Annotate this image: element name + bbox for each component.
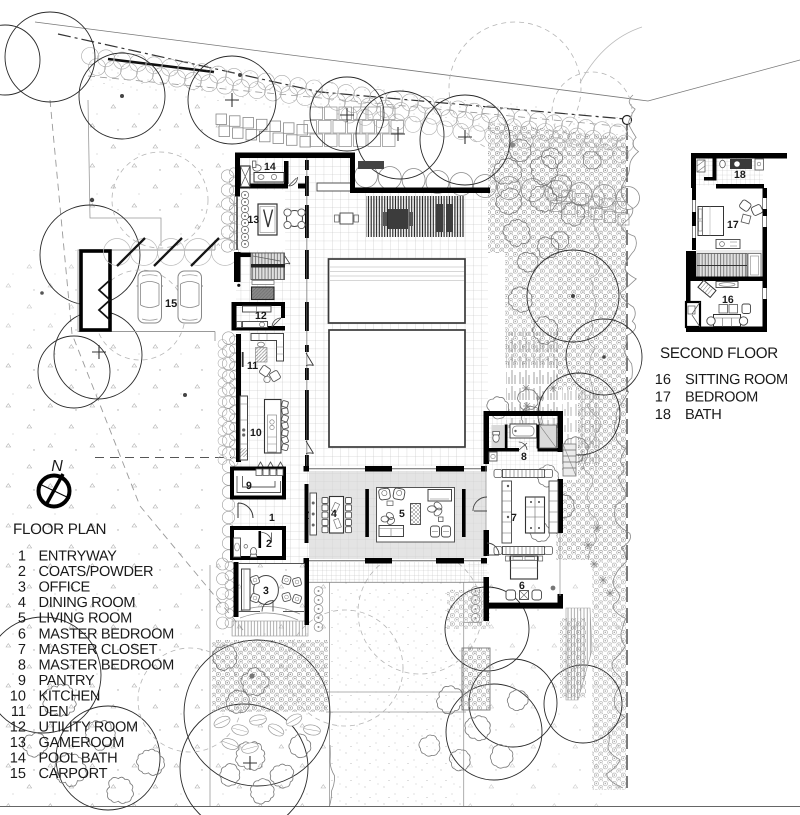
- svg-text:N: N: [51, 458, 63, 475]
- svg-text:5: 5: [399, 508, 405, 520]
- svg-text:14: 14: [10, 751, 26, 767]
- svg-text:13: 13: [10, 735, 26, 751]
- svg-text:5: 5: [18, 611, 26, 627]
- svg-text:COATS/POWDER: COATS/POWDER: [39, 564, 154, 580]
- svg-text:9: 9: [18, 673, 26, 689]
- svg-text:2: 2: [18, 564, 26, 580]
- svg-text:11: 11: [11, 704, 26, 720]
- svg-text:DEN: DEN: [39, 704, 69, 720]
- svg-text:8: 8: [521, 451, 527, 463]
- svg-text:6: 6: [18, 626, 26, 642]
- svg-text:15: 15: [165, 298, 177, 310]
- svg-text:1: 1: [269, 512, 275, 524]
- svg-text:ENTRYWAY: ENTRYWAY: [39, 549, 118, 565]
- svg-text:16: 16: [655, 372, 671, 388]
- svg-text:10: 10: [250, 427, 262, 439]
- svg-text:16: 16: [722, 294, 734, 306]
- svg-text:FLOOR PLAN: FLOOR PLAN: [13, 521, 106, 538]
- svg-text:18: 18: [734, 169, 746, 181]
- svg-text:17: 17: [655, 389, 671, 405]
- svg-text:POOL BATH: POOL BATH: [39, 751, 118, 767]
- svg-text:LIVING ROOM: LIVING ROOM: [39, 611, 132, 627]
- svg-text:BEDROOM: BEDROOM: [685, 389, 758, 405]
- svg-text:GAMEROOM: GAMEROOM: [39, 735, 125, 751]
- svg-text:14: 14: [264, 161, 276, 173]
- svg-text:MASTER BEDROOM: MASTER BEDROOM: [39, 626, 174, 642]
- svg-text:SITTING ROOM: SITTING ROOM: [685, 372, 788, 388]
- svg-text:11: 11: [247, 360, 258, 372]
- svg-text:15: 15: [10, 766, 26, 782]
- svg-text:3: 3: [18, 580, 26, 596]
- svg-text:10: 10: [10, 688, 26, 704]
- svg-text:KITCHEN: KITCHEN: [39, 688, 101, 704]
- svg-text:12: 12: [255, 310, 267, 322]
- svg-text:OFFICE: OFFICE: [39, 580, 91, 596]
- svg-text:PANTRY: PANTRY: [39, 673, 95, 689]
- svg-text:3: 3: [263, 585, 269, 597]
- svg-text:18: 18: [655, 407, 671, 423]
- svg-text:SECOND FLOOR: SECOND FLOOR: [660, 345, 778, 362]
- svg-text:17: 17: [727, 219, 739, 231]
- svg-text:4: 4: [18, 595, 26, 611]
- svg-text:9: 9: [246, 480, 252, 492]
- svg-text:4: 4: [331, 508, 337, 520]
- svg-text:12: 12: [10, 720, 26, 736]
- svg-text:MASTER BEDROOM: MASTER BEDROOM: [39, 657, 174, 673]
- svg-text:MASTER CLOSET: MASTER CLOSET: [39, 642, 158, 658]
- svg-text:CARPORT: CARPORT: [39, 766, 108, 782]
- svg-text:7: 7: [18, 642, 26, 658]
- svg-text:8: 8: [18, 657, 26, 673]
- svg-text:7: 7: [511, 512, 517, 524]
- svg-text:UTILITY ROOM: UTILITY ROOM: [39, 720, 138, 736]
- svg-text:DINING ROOM: DINING ROOM: [39, 595, 136, 611]
- svg-text:2: 2: [266, 538, 272, 550]
- svg-text:BATH: BATH: [685, 407, 721, 423]
- svg-text:1: 1: [18, 549, 26, 565]
- svg-text:13: 13: [248, 214, 260, 226]
